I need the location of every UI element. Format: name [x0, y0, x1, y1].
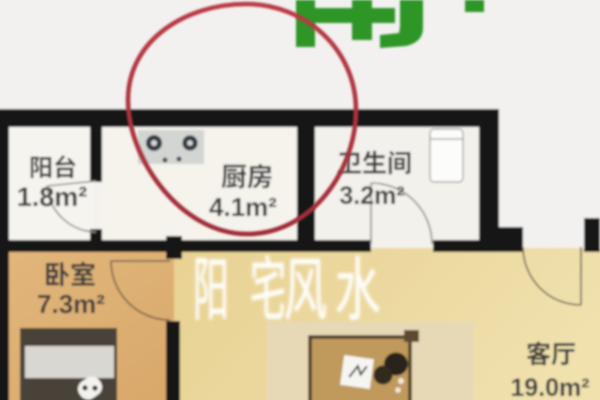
- svg-text:3.2m²: 3.2m²: [339, 182, 404, 210]
- svg-text:1.8m²: 1.8m²: [17, 182, 88, 212]
- svg-text:4.1m²: 4.1m²: [209, 192, 277, 222]
- svg-text:7.3m²: 7.3m²: [37, 289, 105, 319]
- svg-text:19.0m²: 19.0m²: [510, 374, 589, 400]
